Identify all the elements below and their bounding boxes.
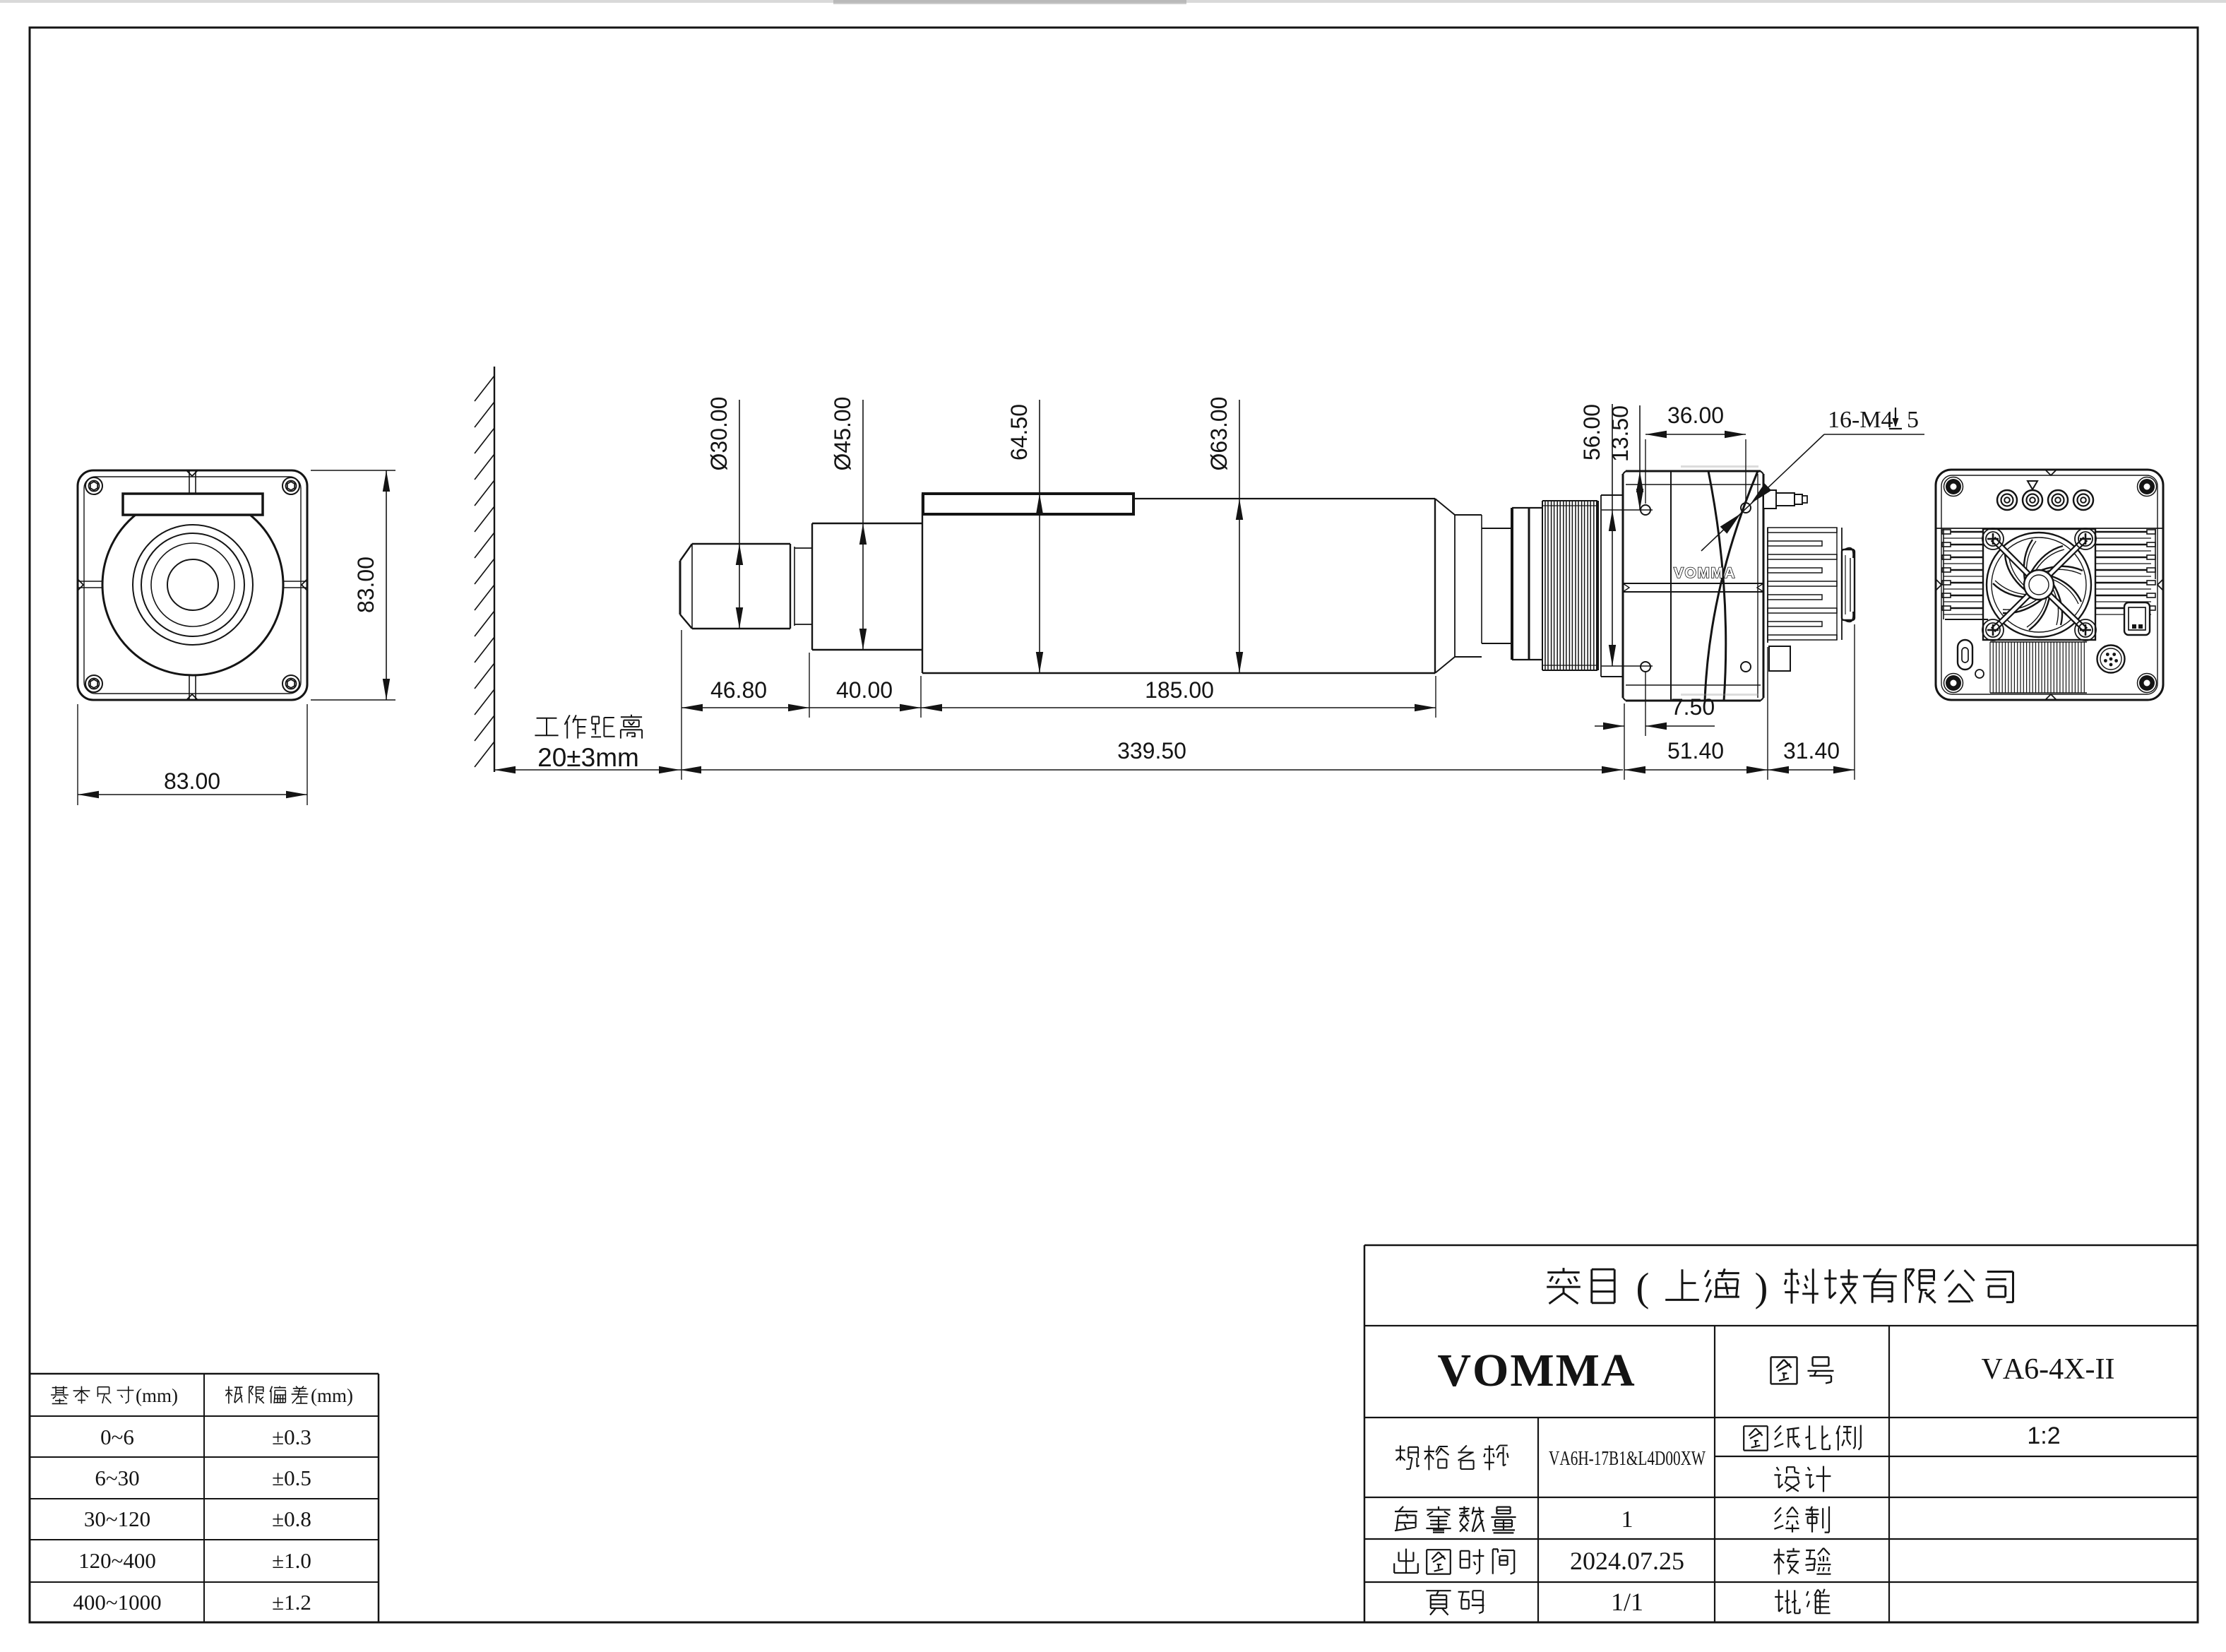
svg-text:1/1: 1/1 [1611, 1588, 1643, 1616]
svg-text:1: 1 [1621, 1507, 1633, 1533]
svg-text:51.40: 51.40 [1667, 738, 1724, 763]
svg-text:±0.3: ±0.3 [272, 1425, 311, 1449]
svg-text:Ø63.00: Ø63.00 [1206, 397, 1232, 471]
svg-text:±1.2: ±1.2 [272, 1590, 311, 1615]
svg-text:VA6-4X-II: VA6-4X-II [1982, 1353, 2115, 1386]
svg-text:VOMMA: VOMMA [1437, 1345, 1636, 1396]
svg-text:VA6H-17B1&L4D00XW: VA6H-17B1&L4D00XW [1549, 1448, 1706, 1470]
svg-text:7.50: 7.50 [1671, 694, 1715, 720]
svg-text:6~30: 6~30 [95, 1466, 139, 1490]
svg-text:400~1000: 400~1000 [73, 1590, 161, 1615]
svg-text:±0.5: ±0.5 [272, 1466, 311, 1490]
svg-text:±1.0: ±1.0 [272, 1548, 311, 1573]
svg-text:339.50: 339.50 [1117, 738, 1186, 763]
svg-text:83.00: 83.00 [353, 557, 379, 613]
svg-text:±0.8: ±0.8 [272, 1507, 311, 1531]
svg-text:40.00: 40.00 [836, 677, 893, 703]
svg-text:(: ( [1636, 1266, 1650, 1310]
svg-text:(mm): (mm) [136, 1385, 178, 1406]
svg-text:120~400: 120~400 [78, 1548, 156, 1573]
svg-text:46.80: 46.80 [710, 677, 767, 703]
svg-text:36.00: 36.00 [1667, 403, 1724, 428]
svg-text:1:2: 1:2 [2027, 1422, 2060, 1449]
svg-text:2024.07.25: 2024.07.25 [1570, 1547, 1684, 1575]
svg-text:20±3mm: 20±3mm [537, 743, 639, 772]
svg-text:31.40: 31.40 [1783, 738, 1840, 763]
svg-text:83.00: 83.00 [164, 768, 220, 794]
svg-text:30~120: 30~120 [84, 1507, 150, 1531]
svg-text:64.50: 64.50 [1006, 404, 1032, 460]
svg-text:16-M4: 16-M4 [1828, 407, 1893, 433]
svg-text:56.00: 56.00 [1579, 404, 1605, 460]
svg-text:): ) [1755, 1266, 1768, 1310]
svg-text:Ø30.00: Ø30.00 [706, 397, 732, 471]
svg-text:(mm): (mm) [311, 1385, 353, 1406]
svg-text:Ø45.00: Ø45.00 [830, 397, 855, 471]
svg-text:13.50: 13.50 [1607, 405, 1633, 462]
svg-text:VOMMA: VOMMA [1674, 565, 1736, 581]
svg-text:0~6: 0~6 [100, 1425, 134, 1449]
svg-text:185.00: 185.00 [1145, 677, 1214, 703]
svg-text:5: 5 [1907, 407, 1919, 433]
